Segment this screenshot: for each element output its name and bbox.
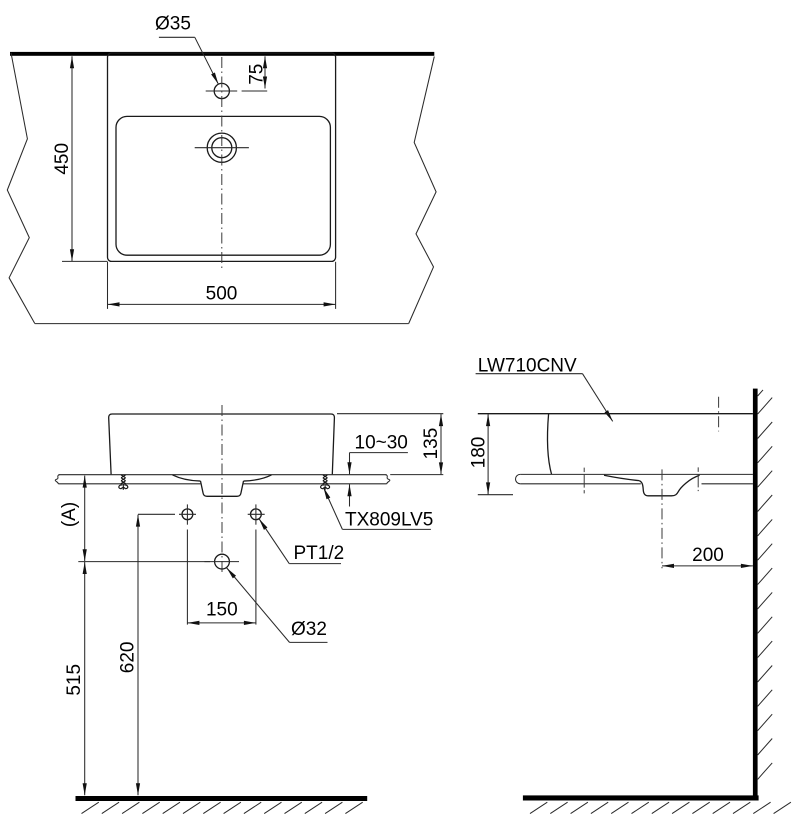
svg-text:75: 75 — [247, 64, 268, 85]
svg-text:450: 450 — [52, 143, 73, 175]
svg-text:150: 150 — [206, 600, 238, 621]
svg-text:180: 180 — [468, 437, 489, 469]
svg-text:515: 515 — [64, 664, 85, 696]
svg-text:(A): (A) — [59, 502, 80, 527]
svg-text:PT1/2: PT1/2 — [294, 543, 345, 564]
svg-text:Ø32: Ø32 — [291, 619, 327, 640]
svg-text:620: 620 — [118, 642, 139, 674]
svg-text:135: 135 — [421, 428, 442, 460]
svg-text:Ø35: Ø35 — [155, 14, 191, 35]
svg-text:10~30: 10~30 — [355, 432, 408, 453]
svg-text:TX809LV5: TX809LV5 — [345, 509, 433, 530]
svg-text:200: 200 — [692, 545, 724, 566]
svg-text:500: 500 — [206, 283, 238, 304]
